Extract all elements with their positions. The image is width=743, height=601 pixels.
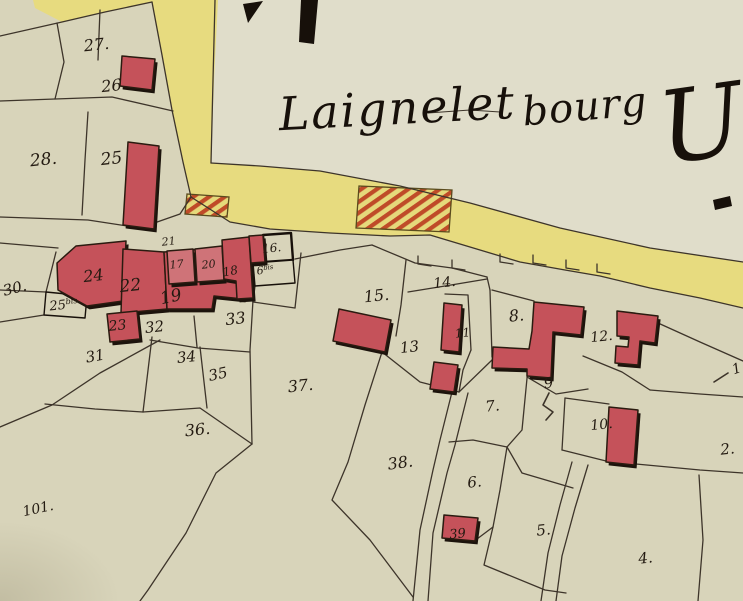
parcel-label-28: 28. xyxy=(28,149,58,172)
parcel-label-34: 34 xyxy=(176,347,197,367)
building-11b xyxy=(430,362,458,392)
parcel-label-38: 38. xyxy=(386,451,414,473)
parcel-label-32: 32 xyxy=(144,317,165,337)
parcel-label-4: 4. xyxy=(636,548,653,568)
parcel-label-12: 12. xyxy=(590,328,614,346)
parcel-label-39: 39 xyxy=(449,526,467,543)
parcel-label-21: 21 xyxy=(160,234,176,248)
building-26 xyxy=(120,56,155,90)
parcel-label-31: 31 xyxy=(84,346,106,367)
parcel-label-22: 22 xyxy=(118,275,143,297)
parcel-label-6: 6. xyxy=(466,472,482,491)
parcel-label-13: 13 xyxy=(399,337,420,357)
map-title-partial-word: U xyxy=(651,60,743,188)
paper-shading xyxy=(0,401,300,601)
parcel-label-37: 37. xyxy=(287,375,314,397)
hatch-large-stripes xyxy=(356,186,452,232)
parcel-label-33: 33 xyxy=(224,308,246,329)
parcel-label-7: 7. xyxy=(484,396,500,415)
cadastral-map: 27.2628.2530.25bis2422192332333134352117… xyxy=(0,0,743,601)
parcel-label-17: 17 xyxy=(169,257,184,271)
parcel-label-26: 26 xyxy=(99,75,122,96)
map-canvas: 27.2628.2530.25bis2422192332333134352117… xyxy=(0,0,743,601)
parcel-label-24: 24 xyxy=(81,265,104,286)
building-25 xyxy=(123,142,159,229)
parcel-label-23: 23 xyxy=(107,317,127,335)
parcel-label-10: 10. xyxy=(590,416,614,434)
parcel-label-20: 20 xyxy=(200,257,216,271)
parcel-label-14: 14. xyxy=(433,274,457,292)
parcel-label-15: 15. xyxy=(363,285,390,307)
parcel-label-8: 8. xyxy=(508,305,525,325)
parcel-label-2: 2. xyxy=(718,439,735,459)
parcel-label-25: 25 xyxy=(99,148,124,170)
parcel-label-11: 11 xyxy=(454,325,471,341)
parcel-label-27: 27. xyxy=(82,34,110,56)
parcel-label-5: 5. xyxy=(535,520,551,539)
parcel-label-16: 16. xyxy=(261,240,281,256)
parcel-label-18: 18 xyxy=(222,263,240,280)
